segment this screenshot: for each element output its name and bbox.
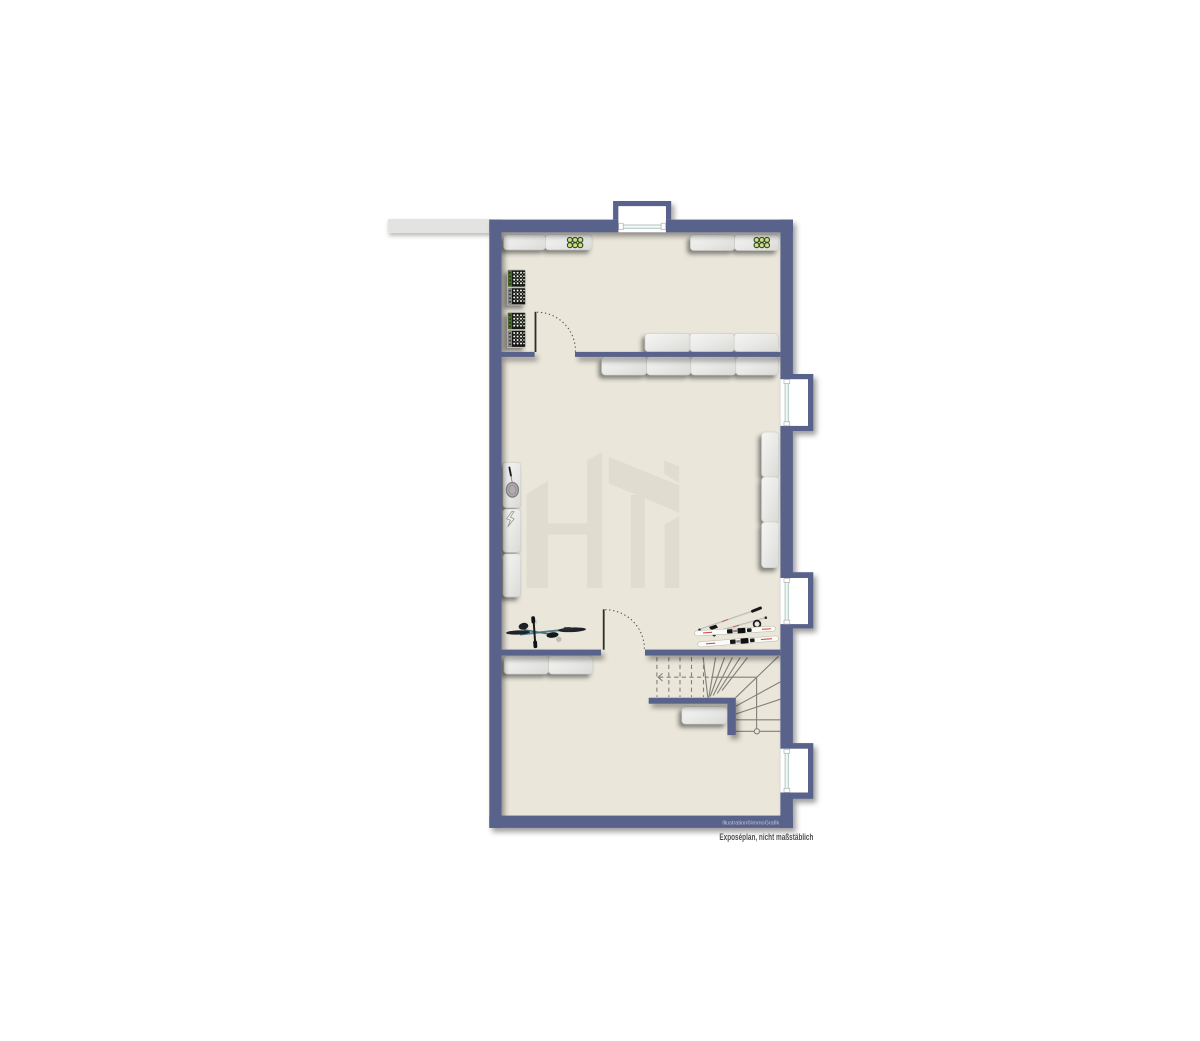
svg-text:Illustration©immoGrafik: Illustration©immoGrafik — [722, 820, 779, 827]
svg-text:Exposéplan, nicht maßstäblich: Exposéplan, nicht maßstäblich — [719, 831, 813, 842]
